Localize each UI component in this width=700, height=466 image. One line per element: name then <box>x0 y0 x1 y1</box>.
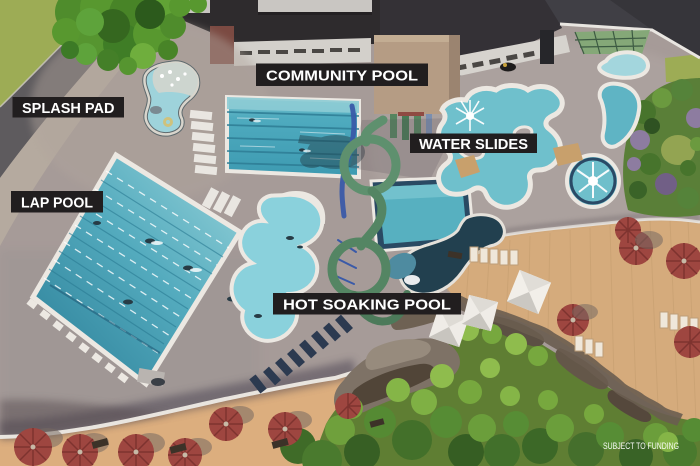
svg-text:LAP POOL: LAP POOL <box>21 194 93 211</box>
svg-text:SUBJECT TO FUNDING: SUBJECT TO FUNDING <box>603 441 679 452</box>
svg-text:HOT SOAKING POOL: HOT SOAKING POOL <box>283 296 451 313</box>
svg-text:WATER SLIDES: WATER SLIDES <box>419 136 528 153</box>
svg-text:SPLASH PAD: SPLASH PAD <box>22 100 115 117</box>
svg-text:COMMUNITY POOL: COMMUNITY POOL <box>266 68 418 85</box>
